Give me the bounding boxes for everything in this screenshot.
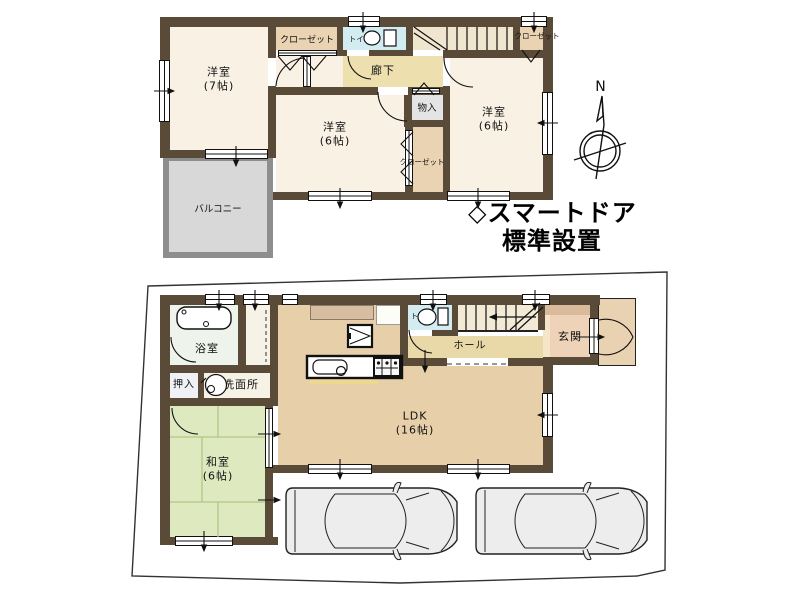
room-oshiire-label: 押入 [173, 379, 195, 392]
wall [160, 295, 170, 545]
kitchen-floor-strip [310, 378, 378, 384]
window [542, 393, 553, 437]
window [522, 294, 550, 305]
room-toilet-1f-label: トイレ [411, 311, 434, 322]
room-yoshitsu7-label: 洋室(7帖) [204, 66, 235, 95]
room-yoshitsu6-right-label: 洋室(6帖) [479, 106, 510, 135]
staircase-1f [458, 305, 538, 330]
closet-door [412, 88, 440, 94]
passage-opening [447, 358, 508, 366]
window [521, 16, 547, 27]
closet-door [278, 50, 337, 56]
door-opening [347, 50, 369, 56]
car-2 [476, 482, 647, 559]
window [420, 294, 447, 305]
wall [270, 295, 278, 398]
wall [160, 365, 278, 373]
room-yoshitsu6-center-label: 洋室(6帖) [320, 121, 351, 150]
entrance-door [589, 318, 599, 354]
window [205, 294, 235, 305]
window [308, 464, 372, 474]
wall [198, 373, 204, 398]
room-ldk-label: LDK(16帖) [396, 410, 435, 439]
wall [452, 295, 458, 330]
room-hall-label: ホール [454, 340, 487, 353]
room-monoire-label: 物入 [417, 100, 436, 114]
window [348, 16, 380, 27]
balcony-door [205, 149, 268, 159]
room-closet-topright-label: クローゼット [515, 31, 560, 42]
room-toilet-2f-label: トイレ [349, 34, 372, 45]
window [159, 60, 170, 122]
door-opening [268, 58, 276, 86]
window [243, 294, 269, 305]
door-leaf [303, 56, 311, 87]
wall [404, 120, 450, 127]
door-opening [443, 58, 450, 86]
car-1 [286, 482, 457, 559]
compass-icon [574, 96, 626, 179]
door-opening [378, 87, 408, 95]
room-washroom [246, 305, 270, 365]
door-opening [408, 330, 432, 336]
floorplan-canvas: 洋室(7帖) クローゼット トイレ クローゼット 廊下 物入 洋室(6帖) クロ… [0, 0, 800, 600]
window [308, 191, 372, 201]
room-washitsu-label: 和室(6帖) [203, 456, 234, 485]
wall [450, 50, 543, 58]
window [175, 536, 233, 546]
window [447, 464, 510, 474]
wall [268, 17, 276, 158]
room-closet-top-label: クローゼット [280, 33, 334, 46]
room-genkan-label: 玄関 [558, 330, 582, 344]
balcony-label: バルコニー [194, 201, 241, 215]
wall [238, 305, 246, 365]
genkan-storage [545, 305, 590, 315]
room-washroom-label: 洗面所 [223, 378, 259, 392]
stairs-edge-line [458, 330, 538, 332]
window [542, 92, 553, 155]
room-ldk [278, 305, 400, 465]
kitchen-counter-side [376, 305, 402, 325]
compass-n-label: N [595, 78, 606, 96]
room-closet-mid-label: クローゼット [400, 157, 445, 168]
room-rouka-label: 廊下 [371, 64, 395, 78]
wall [160, 398, 278, 406]
room-bath-label: 浴室 [195, 342, 219, 356]
window [282, 294, 298, 305]
kitchen-cabinet [310, 305, 374, 320]
sliding-door [265, 408, 273, 468]
entrance-porch [598, 298, 636, 366]
staircase-2f [413, 27, 513, 50]
smart-door-note: ◇スマートドア 標準設置 [468, 200, 688, 255]
